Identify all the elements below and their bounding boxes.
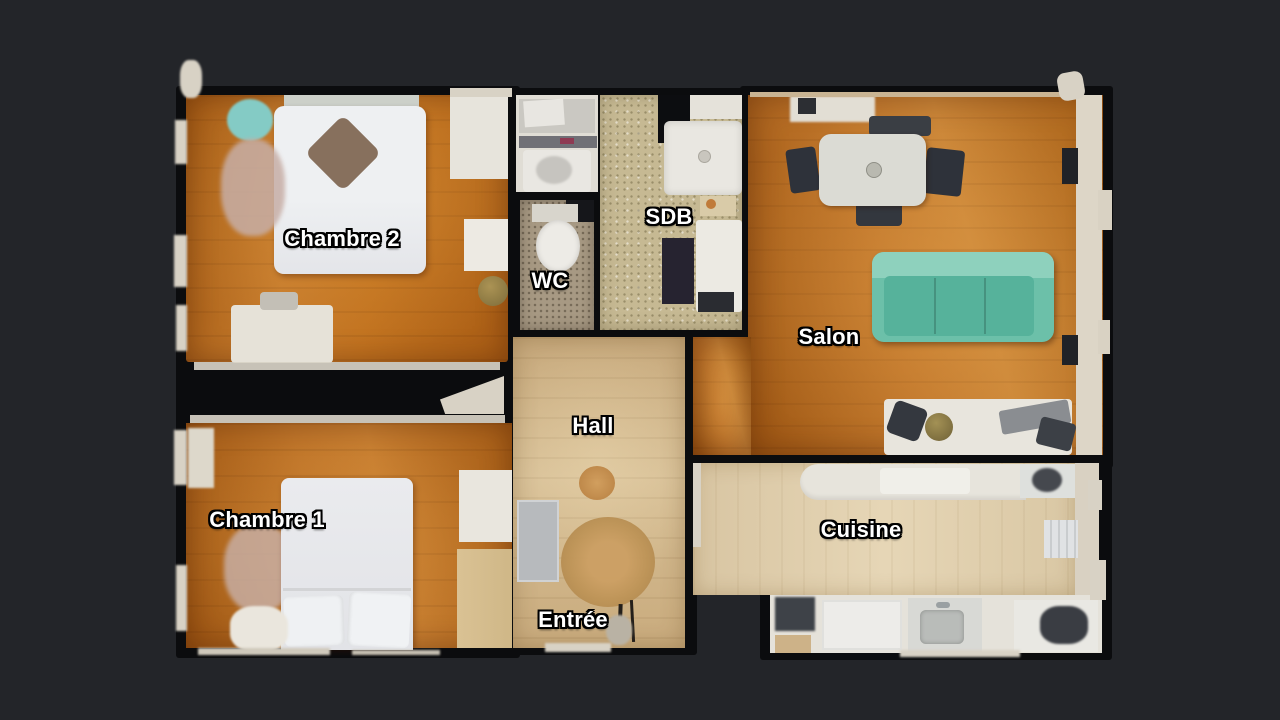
scan-fringe-left-2 xyxy=(174,235,187,287)
dining-chair-left xyxy=(785,146,821,194)
entree-door-blob xyxy=(606,615,632,645)
wall-line-chambre1-top xyxy=(190,415,505,423)
kitchen-sink-bowl xyxy=(920,610,964,644)
hall-rug-small xyxy=(579,466,615,500)
hall-rug-round xyxy=(561,517,655,607)
sdb-toiletries xyxy=(706,199,716,209)
cuisine-left-fringe xyxy=(693,463,701,547)
scan-fringe-salon-topright xyxy=(1056,70,1086,102)
closet-chambre1 xyxy=(459,470,512,542)
desk-nook-globe xyxy=(925,413,953,441)
kitchen-stove-dark xyxy=(1040,606,1088,644)
chambre1-floor-blob xyxy=(230,606,288,652)
scan-fringe-left-1 xyxy=(175,120,187,164)
cuisine-right-bump-2 xyxy=(1088,480,1102,510)
sofa-seam-1 xyxy=(934,278,936,334)
sink-dark-sdb xyxy=(698,292,734,312)
salon-right-bump-1 xyxy=(1098,190,1112,230)
wall-line-chambre2-bottom xyxy=(194,362,500,370)
salon-right-wall-dark-2 xyxy=(1062,335,1078,365)
laundry-dark-strip xyxy=(519,136,597,148)
closet-chambre2 xyxy=(450,97,508,179)
room-label-cuisine: Cuisine xyxy=(821,517,902,543)
salon-top-dark-bit xyxy=(798,98,816,114)
shower-drain xyxy=(698,150,711,163)
kitchen-radiator xyxy=(1044,520,1078,558)
room-label-entree: Entrée xyxy=(538,607,608,633)
room-salon-floor-ext[interactable] xyxy=(693,337,751,455)
room-label-sdb: SDB xyxy=(645,204,692,230)
scan-fringe-chambre1-bottom-1 xyxy=(198,648,330,655)
washing-machine-drum xyxy=(536,156,572,184)
kitchen-bottom-dark xyxy=(775,597,815,631)
dining-chair-right xyxy=(923,147,966,197)
pillow-chambre1-left xyxy=(283,595,345,647)
dining-table-center xyxy=(866,162,882,178)
room-label-salon: Salon xyxy=(799,324,860,350)
scan-fringe-chambre2-top xyxy=(450,88,512,97)
room-label-chambre-1: Chambre 1 xyxy=(209,507,325,533)
scan-fringe-left-3 xyxy=(176,305,187,351)
laundry-linen xyxy=(523,99,565,128)
bed-chambre1-line xyxy=(283,588,411,591)
dining-chair-top xyxy=(869,116,931,136)
scan-fringe-chambre1-bottom-2 xyxy=(352,650,440,655)
kitchen-cabinet-bottom xyxy=(822,600,902,650)
kitchen-counter-sink xyxy=(880,468,970,494)
scan-fringe-left-5 xyxy=(176,565,187,631)
room-label-hall: Hall xyxy=(572,413,613,439)
cuisine-bottom-fringe xyxy=(900,650,1020,657)
sofa-back xyxy=(872,252,1054,278)
salon-right-wall xyxy=(1076,95,1102,455)
bath-mat-sdb xyxy=(662,238,694,304)
wall-line-salon-top xyxy=(750,92,1070,97)
kitchen-bottom-tan xyxy=(775,635,811,653)
room-label-wc: WC xyxy=(531,268,568,294)
sofa-seat xyxy=(884,276,1034,336)
scan-fringe-topleft xyxy=(180,60,202,98)
salon-right-bump-2 xyxy=(1098,320,1110,354)
floorplan-stage: Chambre 2 WC SDB Salon Hall Chambre 1 Cu… xyxy=(0,0,1280,720)
nightstand-chambre2 xyxy=(464,219,508,271)
chambre1-topleft-bits xyxy=(188,428,214,488)
laundry-red-bit xyxy=(560,138,574,144)
beanbag-chambre2 xyxy=(227,99,273,141)
room-label-chambre-2: Chambre 2 xyxy=(284,226,400,252)
hall-cabinet xyxy=(517,500,559,582)
scan-fringe-left-4 xyxy=(174,430,187,485)
kitchen-appliance-dark-swirl xyxy=(1032,468,1062,492)
toilet-bowl xyxy=(536,220,580,272)
kitchen-faucet xyxy=(936,602,950,608)
rug-chambre2 xyxy=(221,139,285,236)
scan-fringe-entree-bottom xyxy=(545,643,611,652)
wardrobe-chambre1 xyxy=(457,549,512,648)
desk-chambre2 xyxy=(231,305,333,363)
cuisine-right-bump-1 xyxy=(1090,560,1106,600)
pillow-chambre1-right xyxy=(347,591,412,648)
desk-chair-chambre2 xyxy=(260,292,298,310)
lamp-chambre2 xyxy=(478,276,508,306)
sdb-shelf xyxy=(700,196,736,216)
sofa-seam-2 xyxy=(984,278,986,334)
salon-right-wall-dark-1 xyxy=(1062,148,1078,184)
sdb-top-white xyxy=(690,95,742,119)
